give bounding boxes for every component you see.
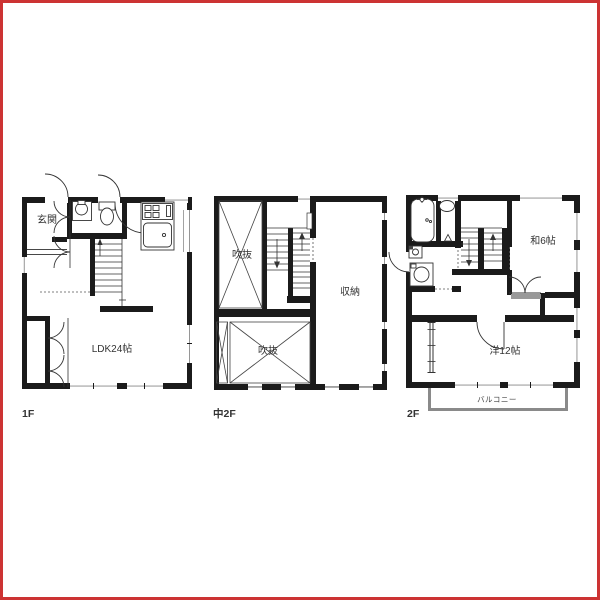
room-label-ldk: LDK24帖: [76, 345, 148, 355]
floor-plan-naka2f: 吹抜 収納 吹抜: [212, 193, 390, 393]
corner-sink-icon: [409, 246, 422, 258]
washbasin-icon: [73, 201, 92, 221]
living-closet-doors-icon: [48, 318, 68, 387]
ldk-door-arc-icon: [115, 203, 145, 233]
room-label-balcony: バルコニー: [465, 396, 529, 404]
room-label-void-bottom: 吹抜: [250, 347, 286, 357]
floor-label-2f: 2F: [407, 409, 419, 420]
kitchen-counter: [141, 202, 174, 250]
floor-plan-1f: 玄関 LDK24帖: [20, 193, 195, 393]
entrance-door-arc-icon: [45, 174, 120, 197]
bath-door-triangle-icon: [445, 235, 452, 242]
kitchen-sink-icon: [144, 223, 172, 247]
room-label-void-top: 吹抜: [224, 251, 260, 261]
stove-icon: [143, 204, 173, 220]
room-label-youshitsu: 洋12帖: [475, 347, 535, 357]
west-window-lines: [428, 322, 436, 373]
floor-label-naka2f: 中2F: [213, 409, 236, 420]
room-label-storage: 収納: [332, 288, 368, 298]
washbasin-oval-icon: [440, 201, 455, 212]
entrance-step-lines: [27, 249, 67, 255]
room-label-washitsu: 和6帖: [517, 237, 569, 247]
double-closet-doors-icon: [509, 277, 541, 299]
toilet-icon: [99, 202, 115, 225]
staircase-icon: [95, 239, 126, 307]
room-label-genkan: 玄関: [28, 216, 66, 226]
floor-label-1f: 1F: [22, 409, 34, 420]
room-door-arc-icon: [477, 322, 504, 349]
floor-2f-drawing: [403, 193, 583, 418]
washing-machine-icon: [410, 263, 433, 286]
floor-plan-2f: 和6帖 洋12帖 バルコニー: [403, 193, 583, 418]
bathtub-icon: [411, 196, 434, 242]
